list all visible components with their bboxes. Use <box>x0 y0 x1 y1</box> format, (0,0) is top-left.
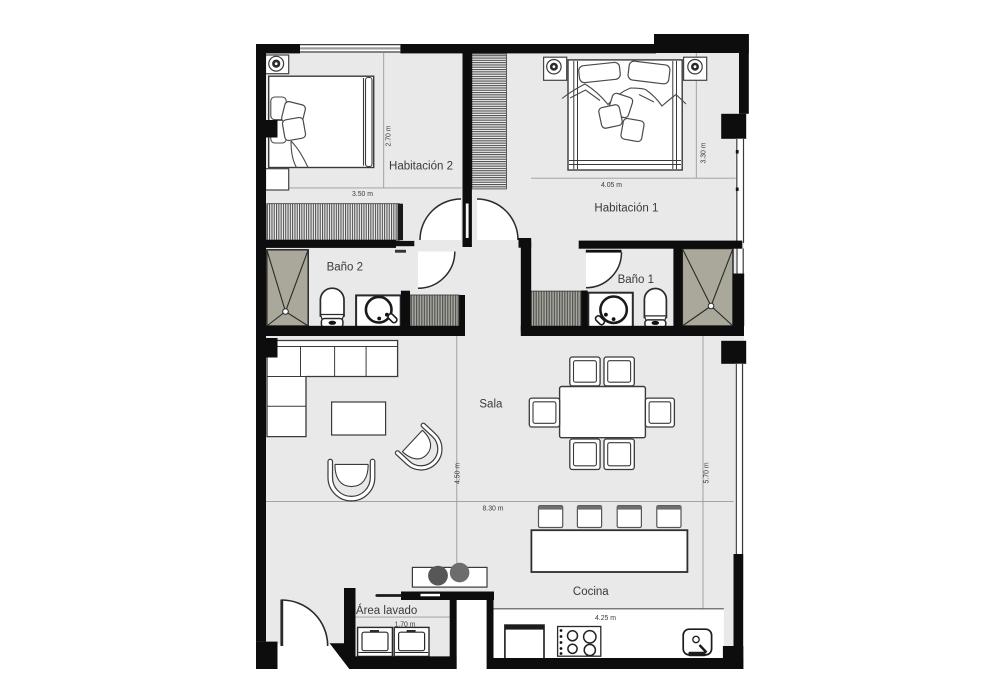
svg-text:3.50 m: 3.50 m <box>352 191 373 198</box>
svg-text:Habitación 2: Habitación 2 <box>389 161 453 173</box>
svg-text:5.70 m: 5.70 m <box>704 462 711 483</box>
svg-text:4.25 m: 4.25 m <box>595 615 616 622</box>
svg-text:Área lavado: Área lavado <box>356 604 417 617</box>
svg-text:Cocina: Cocina <box>573 586 609 598</box>
svg-text:1.70 m: 1.70 m <box>394 622 415 629</box>
svg-text:Sala: Sala <box>479 398 503 410</box>
svg-text:2.70 m: 2.70 m <box>386 125 393 146</box>
svg-text:Habitación 1: Habitación 1 <box>594 203 658 215</box>
svg-text:4.50 m: 4.50 m <box>455 463 462 484</box>
svg-text:Baño 1: Baño 1 <box>618 274 654 286</box>
svg-text:3.30 m: 3.30 m <box>701 142 708 163</box>
svg-text:8.30 m: 8.30 m <box>482 506 503 513</box>
svg-text:4.05 m: 4.05 m <box>601 182 622 189</box>
svg-text:Baño 2: Baño 2 <box>327 262 363 274</box>
